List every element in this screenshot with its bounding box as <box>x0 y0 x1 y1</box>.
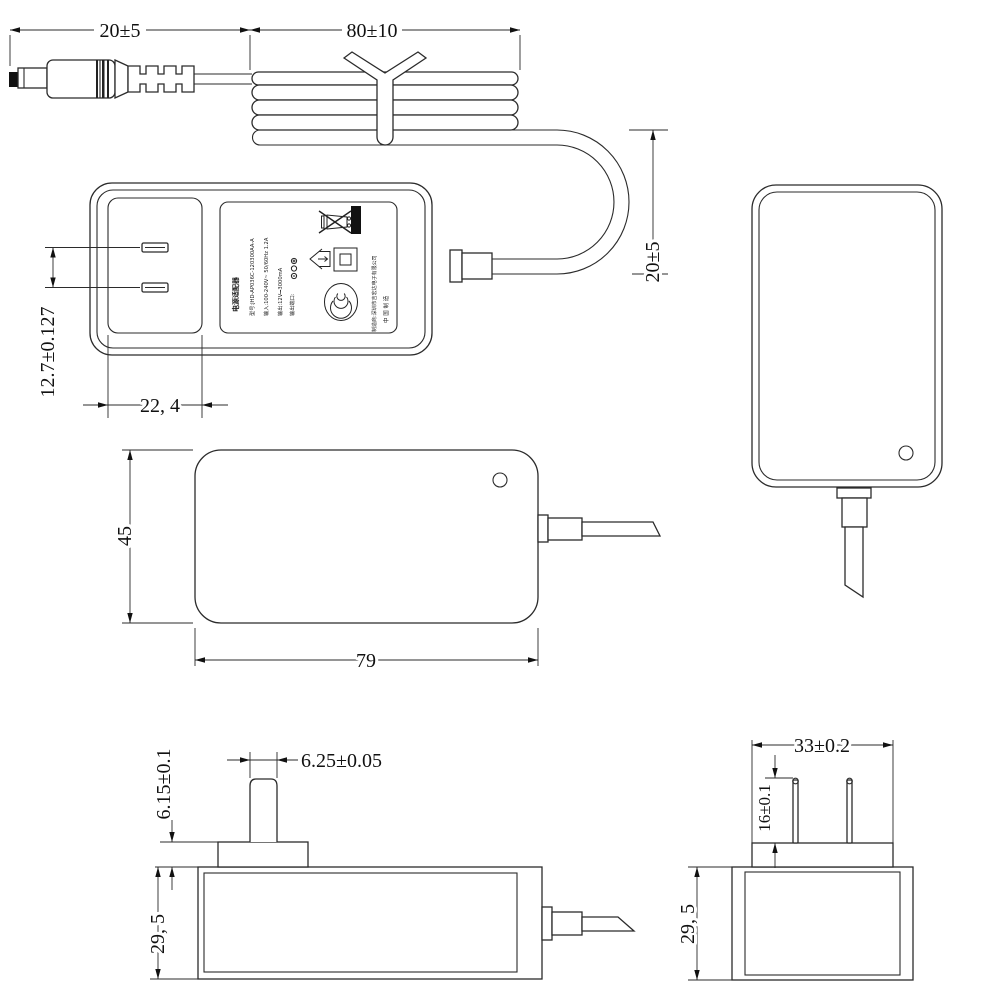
bottom-end-thickness-dimension: 29, 5 <box>677 867 732 980</box>
bottom-cable-bushing <box>552 912 582 935</box>
dim-side-height: 45 <box>114 526 136 546</box>
adapter-side-view <box>195 450 660 623</box>
back-body-outer <box>752 185 942 487</box>
front-body-outer <box>90 183 432 355</box>
back-cable-stub <box>845 527 863 597</box>
cable-to-coil <box>194 74 252 84</box>
bottom-cable-stub <box>582 917 634 931</box>
bottom-cable-collar <box>542 907 552 940</box>
dc-plug-neck <box>115 60 128 98</box>
adapter-back-view <box>752 185 942 597</box>
dim-bottom-side-thickness: 29, 5 <box>147 914 169 954</box>
side-height-dimension: 45 <box>114 450 193 623</box>
back-cable-bushing <box>842 498 867 527</box>
label-model: 型号:JHD-AP036C-120300AA-A <box>248 238 256 316</box>
dim-blade-length: 16±0.1 <box>755 784 774 832</box>
adapter-bottom-side-view <box>198 779 634 979</box>
front-cable-exit <box>450 250 492 282</box>
loop-height-dimension: 20±5 <box>629 130 668 282</box>
side-body <box>195 450 538 623</box>
dc-plug <box>9 60 252 98</box>
black-bar-icon <box>351 206 361 234</box>
dim-side-width: 79 <box>356 650 376 672</box>
plug-blade <box>250 779 277 842</box>
back-cable-collar <box>837 488 871 498</box>
plug-prongs-edge <box>793 778 853 843</box>
label-output: 输出:12V⎓3000mA <box>276 267 284 316</box>
dim-bottom-end-thickness: 29, 5 <box>677 904 699 944</box>
plug-base <box>218 842 308 867</box>
technical-drawing: 20±5 80±10 20±5 <box>0 0 1000 1000</box>
bottom-end-body-outer <box>732 867 913 980</box>
side-cable-stub <box>582 522 660 536</box>
side-width-dimension: 79 <box>195 628 538 672</box>
dim-plug-length: 20±5 <box>100 20 141 42</box>
dim-blade-width: 6.25±0.05 <box>301 750 382 772</box>
adapter-front-view: 电源适配器 型号:JHD-AP036C-120300AA-A 输入:100-24… <box>90 183 492 355</box>
label-input: 输入:100-240V~ 50/60Hz 1.2A <box>262 237 270 316</box>
side-cable-collar <box>538 515 548 542</box>
cable-loop <box>492 130 629 274</box>
dim-loop-height: 20±5 <box>642 242 664 283</box>
dim-base-height: 6.15±0.1 <box>153 749 175 820</box>
label-title: 电源适配器 <box>231 276 240 312</box>
label-manufacturer: 制造商:深圳市吉宏达电子有限公司 <box>371 255 378 332</box>
bottom-side-body-outer <box>198 867 542 979</box>
bottom-side-thickness-dimension: 29, 5 <box>147 867 198 979</box>
dc-plug-strain-relief <box>128 66 194 92</box>
blade-width-dimension: 6.25±0.05 <box>227 750 382 778</box>
side-cable-bushing <box>548 518 582 540</box>
dc-plug-body <box>47 60 115 98</box>
dim-recess-width: 22, 4 <box>140 395 180 417</box>
technical-drawing-page: 20±5 80±10 20±5 <box>0 0 1000 1000</box>
dim-blade-gap: 12.7±0.127 <box>37 307 59 398</box>
dc-plug-tip <box>9 72 18 87</box>
dim-base-width: 33±0.2 <box>794 735 850 757</box>
dc-plug-barrel <box>18 68 47 88</box>
label-made-in: 中 国 制 造 <box>382 295 390 323</box>
dim-coil-length: 80±10 <box>347 20 398 42</box>
label-port: 输出端口: <box>288 293 296 316</box>
plug-base-end <box>752 843 893 867</box>
